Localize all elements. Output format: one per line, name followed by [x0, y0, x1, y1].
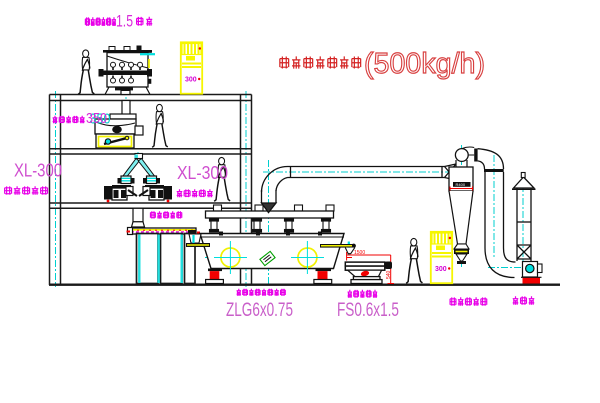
svg-text:XL-300: XL-300	[14, 160, 62, 181]
svg-text:350: 350	[86, 110, 107, 127]
svg-text:1.5: 1.5	[116, 13, 133, 31]
svg-text:ZLG6x0.75: ZLG6x0.75	[226, 300, 293, 321]
svg-text:R400: R400	[456, 182, 466, 187]
svg-text:(500kg/h): (500kg/h)	[364, 48, 485, 80]
svg-text:XL-300: XL-300	[177, 162, 228, 183]
svg-text:540: 540	[386, 270, 392, 279]
svg-text:FS0.6x1.5: FS0.6x1.5	[337, 300, 399, 321]
svg-text:1500: 1500	[354, 250, 365, 256]
